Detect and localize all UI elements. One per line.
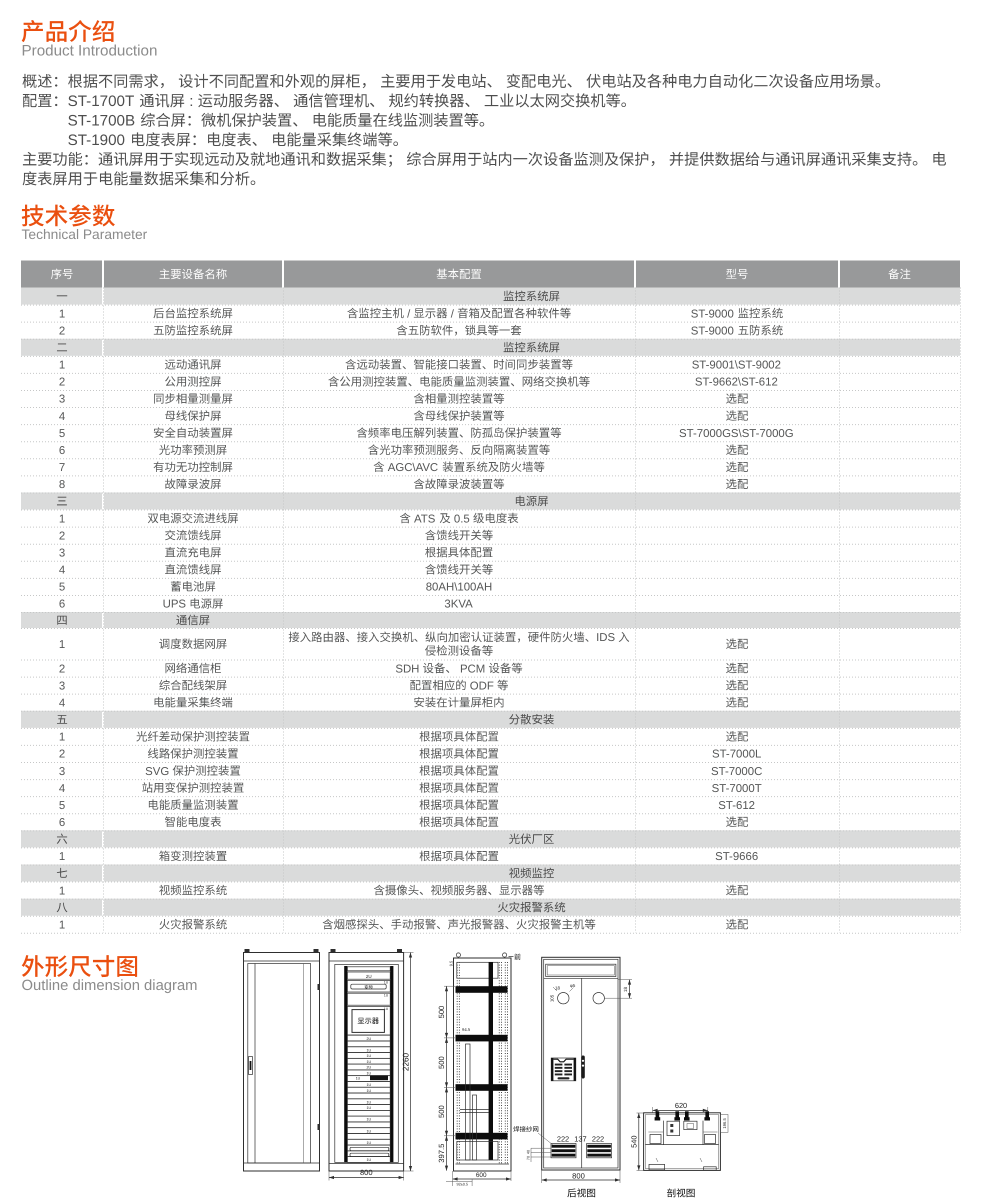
svg-text:IDS: IDS [596, 632, 615, 644]
svg-text:3KVA: 3KVA [444, 599, 473, 611]
svg-text:5: 5 [59, 428, 65, 440]
svg-text:ST-9001\ST-9002: ST-9001\ST-9002 [692, 360, 781, 372]
svg-text:4: 4 [59, 565, 65, 577]
svg-text:2: 2 [59, 530, 65, 542]
svg-text:ST-7000L: ST-7000L [712, 749, 761, 761]
svg-text:397.5: 397.5 [437, 1144, 446, 1163]
svg-text:3: 3 [59, 766, 65, 778]
svg-text:ST-1700B: ST-1700B [68, 113, 136, 130]
svg-text:94.5: 94.5 [462, 1027, 471, 1032]
svg-text:5: 5 [59, 582, 65, 594]
svg-text:SDH: SDH [395, 663, 419, 675]
svg-text:500: 500 [437, 1056, 446, 1069]
svg-text:1: 1 [59, 732, 65, 744]
svg-text:540: 540 [629, 1136, 638, 1148]
svg-text:500: 500 [437, 1105, 446, 1118]
svg-text:620: 620 [675, 1101, 687, 1110]
svg-text:800: 800 [360, 1168, 373, 1177]
svg-text:1U: 1U [366, 1083, 371, 1087]
svg-text:1U: 1U [366, 1141, 371, 1145]
svg-text:18: 18 [555, 986, 560, 991]
svg-text:8: 8 [59, 479, 65, 491]
svg-text:3: 3 [59, 680, 65, 692]
svg-text:105: 105 [550, 994, 555, 1002]
svg-text:4: 4 [59, 697, 65, 709]
svg-text:40: 40 [527, 1150, 531, 1154]
svg-text:1U: 1U [384, 1007, 389, 1011]
svg-text:70: 70 [527, 1156, 531, 1160]
svg-text:Product Introduction: Product Introduction [22, 42, 158, 59]
svg-text:1U: 1U [366, 1071, 371, 1075]
svg-text::: : [189, 93, 193, 110]
svg-text:ST-9666: ST-9666 [715, 851, 758, 863]
svg-text:ST-9000: ST-9000 [691, 308, 734, 320]
svg-text:SVG: SVG [145, 766, 169, 778]
svg-text:2U: 2U [366, 1037, 371, 1041]
svg-text:222: 222 [592, 1135, 604, 1144]
svg-text:ATS: ATS [414, 513, 436, 525]
svg-text:222: 222 [557, 1135, 569, 1144]
svg-text:1U: 1U [356, 1077, 361, 1081]
svg-text:φ5: φ5 [570, 983, 576, 988]
svg-text:1: 1 [59, 851, 65, 863]
svg-text:1U: 1U [384, 981, 389, 985]
svg-text:6: 6 [59, 817, 65, 829]
svg-text:800: 800 [572, 1171, 585, 1180]
svg-text:ST-612: ST-612 [718, 800, 755, 812]
svg-text:ODF: ODF [470, 680, 494, 692]
svg-text:ST-9662\ST-612: ST-9662\ST-612 [695, 377, 778, 389]
svg-text:0.5: 0.5 [454, 513, 470, 525]
svg-text:92±0.5: 92±0.5 [457, 1182, 469, 1186]
svg-text:1: 1 [59, 919, 65, 931]
svg-text:500: 500 [437, 1006, 446, 1019]
svg-text:ST-7000C: ST-7000C [711, 766, 762, 778]
svg-text:2: 2 [59, 749, 65, 761]
svg-text:4: 4 [59, 783, 65, 795]
svg-text:AGC\AVC: AGC\AVC [388, 462, 438, 474]
svg-text:1: 1 [59, 639, 65, 651]
svg-text:3: 3 [59, 394, 65, 406]
svg-text:1: 1 [59, 513, 65, 525]
svg-text:2: 2 [59, 377, 65, 389]
svg-text:1: 1 [59, 360, 65, 372]
svg-text:1U: 1U [366, 1054, 371, 1058]
svg-text:ST-7000T: ST-7000T [712, 783, 762, 795]
svg-text:7: 7 [59, 462, 65, 474]
svg-text:6: 6 [59, 445, 65, 457]
svg-text:Outline dimension diagram: Outline dimension diagram [22, 978, 198, 994]
svg-text:2U: 2U [366, 974, 372, 979]
svg-text:1: 1 [59, 885, 65, 897]
svg-text:1: 1 [59, 308, 65, 320]
svg-text:2U: 2U [366, 1066, 371, 1070]
svg-text:1U: 1U [366, 1060, 371, 1064]
svg-text:2: 2 [59, 325, 65, 337]
svg-text:ST-1900: ST-1900 [68, 132, 125, 149]
svg-text:2: 2 [59, 663, 65, 675]
svg-text:80AH\100AH: 80AH\100AH [426, 582, 493, 594]
svg-text:1U: 1U [366, 1100, 371, 1104]
svg-text:UPS: UPS [163, 599, 187, 611]
svg-text:137: 137 [574, 1135, 586, 1144]
svg-text:PCM: PCM [460, 663, 485, 675]
svg-text:1U: 1U [384, 994, 389, 998]
svg-text:1U: 1U [366, 1048, 371, 1052]
svg-text:1U: 1U [366, 1089, 371, 1093]
svg-text:6: 6 [59, 599, 65, 611]
svg-text:600: 600 [476, 1172, 487, 1179]
svg-text:2260: 2260 [402, 1052, 411, 1071]
svg-text:1U: 1U [366, 1118, 371, 1122]
svg-text:196.5: 196.5 [722, 1117, 727, 1128]
svg-text:3: 3 [59, 547, 65, 559]
svg-text:1U: 1U [366, 1106, 371, 1110]
svg-text:9.5: 9.5 [449, 960, 454, 966]
svg-text:1U: 1U [366, 1129, 371, 1133]
svg-text:ST-7000GS\ST-7000G: ST-7000GS\ST-7000G [679, 428, 794, 440]
svg-text:ST-1700T: ST-1700T [68, 93, 135, 110]
svg-text:Technical Parameter: Technical Parameter [22, 227, 148, 242]
svg-text:18: 18 [623, 987, 628, 993]
svg-text:ST-9000: ST-9000 [691, 325, 734, 337]
svg-text:5: 5 [59, 800, 65, 812]
svg-text:4: 4 [59, 411, 65, 423]
svg-text:1U: 1U [366, 1158, 371, 1162]
